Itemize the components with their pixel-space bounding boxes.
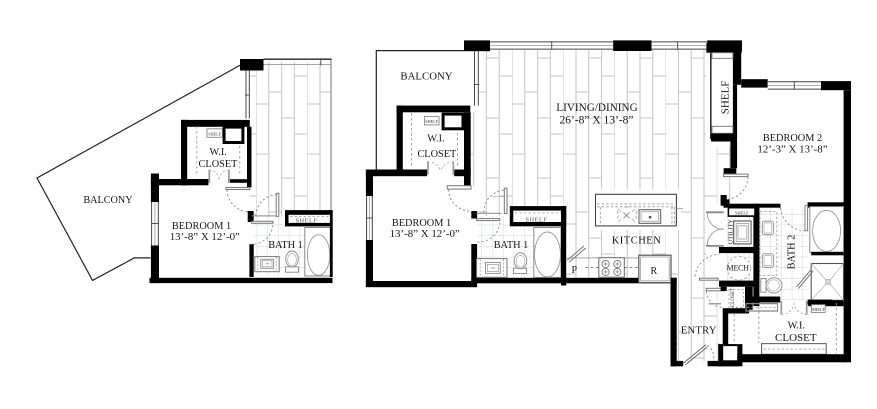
svg-text:W.I.: W.I. <box>788 321 805 332</box>
svg-text:CLOSET: CLOSET <box>417 149 457 160</box>
svg-text:SHELF: SHELF <box>719 81 731 115</box>
svg-text:KITCHEN: KITCHEN <box>612 236 662 247</box>
svg-text:BEDROOM 2: BEDROOM 2 <box>763 133 822 144</box>
svg-text:BATH 1: BATH 1 <box>494 240 529 251</box>
svg-text:R: R <box>650 266 657 277</box>
svg-text:12’-3” X 13’-8”: 12’-3” X 13’-8” <box>757 143 827 155</box>
svg-text:SHELF: SHELF <box>812 307 825 312</box>
svg-text:SHELF: SHELF <box>295 217 317 224</box>
svg-text:MECH: MECH <box>727 263 750 272</box>
svg-text:26’-8” X 13’-8”: 26’-8” X 13’-8” <box>559 114 633 126</box>
svg-text:ENTRY: ENTRY <box>681 326 717 337</box>
svg-text:BATH 2: BATH 2 <box>786 235 797 270</box>
svg-text:SHELF: SHELF <box>208 132 221 137</box>
svg-text:P: P <box>572 265 578 276</box>
svg-text:LIVING/DINING: LIVING/DINING <box>556 102 637 114</box>
svg-text:13’-8” X 12’-0”: 13’-8” X 12’-0” <box>390 228 460 240</box>
svg-text:BALCONY: BALCONY <box>83 195 133 206</box>
svg-text:W.I.: W.I. <box>427 134 444 145</box>
svg-text:CLOSET: CLOSET <box>199 159 239 170</box>
svg-text:SHELF: SHELF <box>425 119 438 124</box>
svg-text:BALCONY: BALCONY <box>400 71 452 83</box>
svg-text:13’-8” X 12’-0”: 13’-8” X 12’-0” <box>170 231 240 243</box>
svg-text:W.I.: W.I. <box>210 147 227 158</box>
svg-text:BATH 1: BATH 1 <box>268 240 303 251</box>
svg-text:SHELF: SHELF <box>525 217 547 224</box>
svg-text:CLOSET: CLOSET <box>775 332 817 344</box>
svg-text:SHELF: SHELF <box>735 210 749 215</box>
